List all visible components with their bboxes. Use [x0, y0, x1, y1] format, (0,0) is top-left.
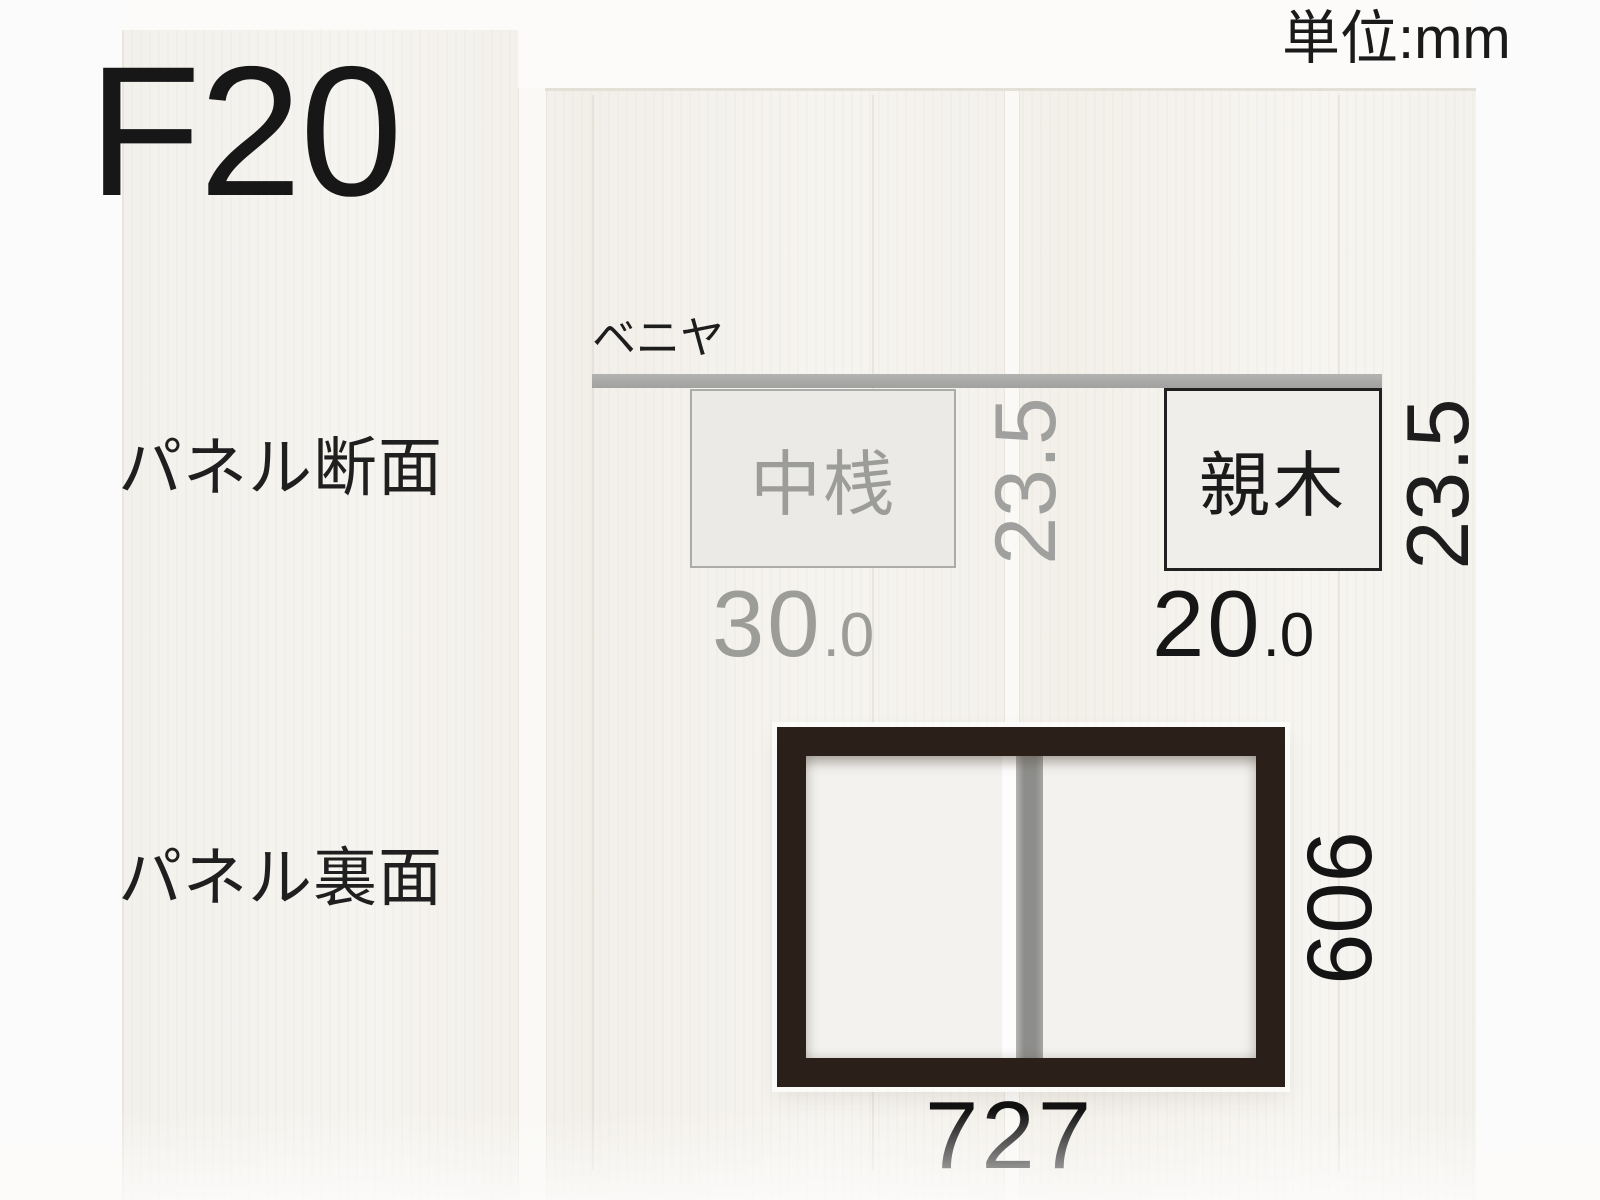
outer-frame-wood-label: 親木 — [1199, 429, 1347, 531]
cross-section-row-label: パネル断面 — [118, 436, 443, 500]
middle-crossbar — [1016, 756, 1043, 1058]
outer-frame-wood-box: 親木 — [1164, 388, 1382, 571]
middle-rail-width-dimension: 30.0 — [712, 577, 874, 671]
plywood-label: ベニヤ — [592, 317, 724, 361]
wood-grain-line — [592, 95, 594, 1170]
middle-rail-width-frac: .0 — [823, 601, 875, 670]
outer-frame-width-frac: .0 — [1263, 601, 1315, 670]
panel-height-value: 606 — [1294, 831, 1386, 985]
panel-seam-left — [518, 88, 547, 1200]
outer-frame-width-int: 20 — [1152, 571, 1263, 676]
unit-label: 単位:mm — [1282, 10, 1511, 68]
panel-back-frame — [777, 727, 1285, 1087]
outer-frame-width-dimension: 20.0 — [1152, 577, 1314, 671]
outer-frame-thickness-value: 23.5 — [1394, 398, 1482, 569]
middle-rail-thickness-dimension: 23.5 — [976, 371, 1076, 591]
bottom-fade — [0, 1110, 1600, 1200]
back-side-row-label: パネル裏面 — [118, 846, 443, 910]
outer-frame-thickness-dimension: 23.5 — [1388, 374, 1488, 594]
panel-height-dimension: 606 — [1290, 798, 1390, 1018]
crossbar-highlight — [1002, 756, 1016, 1058]
middle-rail-label: 中桟 — [750, 428, 896, 530]
middle-rail-thickness-value: 23.5 — [983, 397, 1069, 564]
middle-rail-box: 中桟 — [690, 389, 956, 568]
panel-spec-diagram: F20 単位:mm パネル断面 パネル裏面 ベニヤ 中桟 30.0 23.5 親… — [0, 0, 1600, 1200]
panel-top-edge-shadow — [545, 88, 1476, 91]
middle-rail-width-int: 30 — [712, 571, 823, 676]
size-code-title: F20 — [88, 40, 401, 225]
right-margin — [1476, 0, 1600, 1200]
